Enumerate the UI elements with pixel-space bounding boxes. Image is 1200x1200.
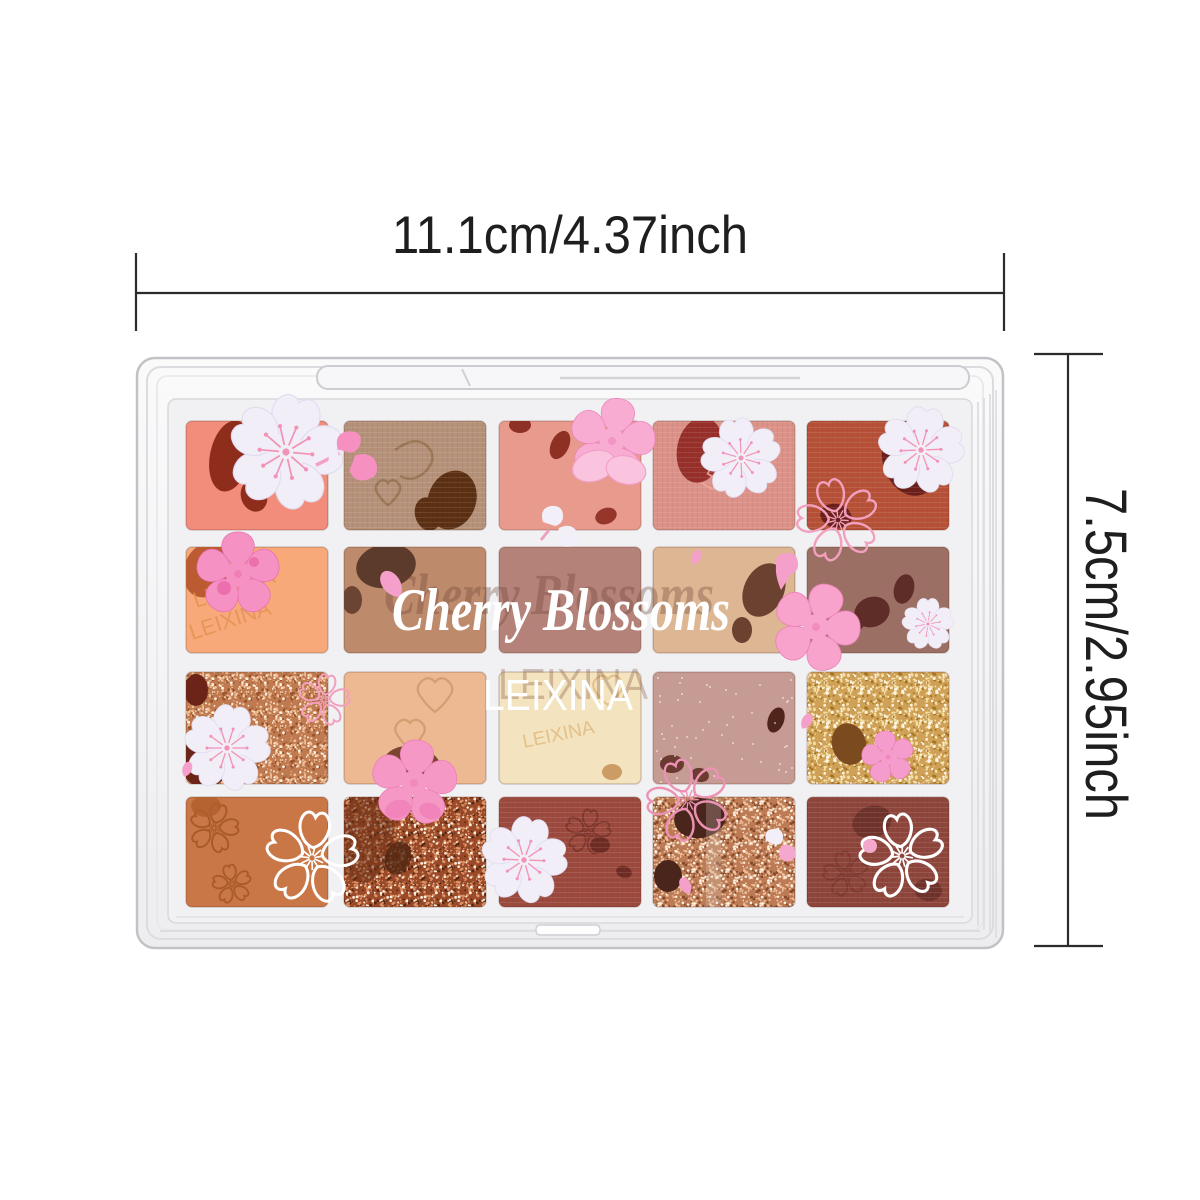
svg-text:7.5cm/2.95inch: 7.5cm/2.95inch bbox=[1073, 488, 1138, 820]
svg-text:11.1cm/4.37inch: 11.1cm/4.37inch bbox=[392, 206, 748, 265]
svg-text:Cherry Blossoms: Cherry Blossoms bbox=[392, 577, 730, 643]
svg-text:LEIXINA: LEIXINA bbox=[483, 671, 634, 720]
